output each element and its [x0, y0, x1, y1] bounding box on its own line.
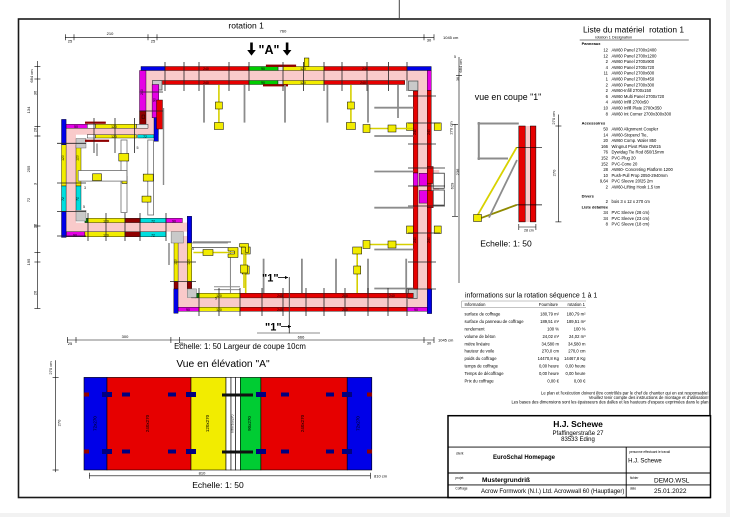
svg-text:Liste détaillée: Liste détaillée [582, 204, 609, 209]
svg-text:684 cm: 684 cm [29, 69, 34, 83]
svg-text:26: 26 [33, 127, 38, 132]
svg-text:AW60 Comp. Waler 850: AW60 Comp. Waler 850 [612, 138, 658, 143]
svg-text:temps de coffrage: temps de coffrage [465, 364, 499, 369]
svg-text:90: 90 [261, 67, 265, 71]
svg-text:34: 34 [603, 210, 608, 215]
svg-text:30: 30 [427, 38, 432, 43]
svg-text:5: 5 [454, 55, 456, 59]
svg-text:240: 240 [427, 129, 431, 135]
svg-text:270 cm: 270 cm [48, 361, 53, 375]
svg-text:166: 166 [601, 144, 609, 149]
svg-text:90: 90 [414, 308, 418, 312]
svg-text:25: 25 [68, 39, 73, 44]
svg-text:Liste du matériel rotation 1: Liste du matériel rotation 1 [583, 25, 684, 35]
svg-text:Prix du coffrage: Prix du coffrage [465, 378, 495, 383]
svg-text:AW60 Multi Panel 2700x720: AW60 Multi Panel 2700x720 [612, 94, 665, 99]
svg-text:240: 240 [413, 237, 417, 243]
svg-text:236: 236 [455, 168, 460, 175]
svg-text:Infill 50x270: Infill 50x270 [231, 414, 235, 432]
svg-text:Wingnut Pivot Plate DW15: Wingnut Pivot Plate DW15 [612, 144, 662, 149]
svg-text:120x270: 120x270 [205, 414, 210, 432]
svg-text:PVC Sleeve (28 cm): PVC Sleeve (28 cm) [612, 210, 651, 215]
svg-text:34,580 m: 34,580 m [568, 341, 586, 346]
svg-text:EuroSchal Homepage: EuroSchal Homepage [493, 455, 556, 461]
svg-text:760: 760 [280, 29, 287, 34]
svg-text:28 cm: 28 cm [524, 229, 534, 233]
svg-text:12: 12 [603, 48, 608, 53]
svg-text:629: 629 [450, 182, 455, 189]
svg-text:300: 300 [122, 334, 129, 339]
svg-text:Vue en élévation "A": Vue en élévation "A" [176, 359, 270, 370]
svg-text:100 %: 100 % [547, 327, 559, 332]
svg-text:72: 72 [143, 135, 147, 139]
svg-text:100 %: 100 % [574, 327, 586, 332]
svg-text:72x270: 72x270 [93, 416, 98, 431]
svg-text:mètre linéaire: mètre linéaire [465, 341, 491, 346]
svg-text:25: 25 [68, 341, 73, 346]
svg-text:120: 120 [300, 67, 306, 71]
svg-text:255: 255 [26, 165, 31, 172]
svg-text:240: 240 [360, 81, 366, 85]
svg-text:666: 666 [298, 335, 305, 340]
svg-text:bois 3 x 12 x 270 cm: bois 3 x 12 x 270 cm [612, 199, 651, 204]
svg-text:AW60 Int Corner 2700x300x300: AW60 Int Corner 2700x300x300 [612, 111, 672, 116]
svg-text:810 cm: 810 cm [374, 474, 388, 479]
svg-text:PVC Sleeve (23 cm): PVC Sleeve (23 cm) [612, 216, 651, 221]
svg-text:Echelle: 1: 50: Echelle: 1: 50 [480, 239, 532, 249]
svg-text:120: 120 [61, 155, 65, 161]
svg-text:PVC Sleeve (18 cm): PVC Sleeve (18 cm) [612, 222, 651, 227]
svg-text:240x270: 240x270 [300, 414, 305, 432]
svg-text:240: 240 [413, 129, 417, 135]
svg-text:90: 90 [152, 98, 156, 102]
svg-text:152: 152 [601, 161, 609, 166]
svg-text:270 cm: 270 cm [449, 121, 454, 135]
svg-text:informations sur la rotation: informations sur la rotation séquence 1 … [465, 293, 597, 300]
svg-text:AW60 Panel 2700x300: AW60 Panel 2700x300 [612, 82, 655, 87]
svg-text:28: 28 [603, 167, 608, 172]
svg-text:client: client [456, 452, 464, 456]
svg-text:PVC Sleeve 20/25 2m: PVC Sleeve 20/25 2m [612, 179, 654, 184]
svg-text:personne effectuant le travail: personne effectuant le travail [629, 450, 670, 454]
svg-text:AW60 Panel 2700x720: AW60 Panel 2700x720 [612, 65, 655, 70]
svg-text:90x270: 90x270 [247, 416, 252, 431]
svg-text:240: 240 [389, 294, 395, 298]
svg-text:0,00 heure: 0,00 heure [565, 364, 586, 369]
svg-text:72x270: 72x270 [356, 416, 361, 431]
svg-text:134: 134 [26, 106, 31, 113]
svg-text:270,0 cm: 270,0 cm [542, 349, 560, 354]
svg-text:240: 240 [277, 294, 283, 298]
svg-text:180,79 m²: 180,79 m² [567, 312, 586, 317]
svg-text:810: 810 [199, 470, 206, 475]
svg-text:90: 90 [261, 81, 265, 85]
svg-text:AW60 Panel 2700x2400: AW60 Panel 2700x2400 [612, 48, 658, 53]
svg-text:14470,8 Kg: 14470,8 Kg [538, 356, 560, 361]
svg-text:Acrow Formwork (N.I.) Ltd. Acr: Acrow Formwork (N.I.) Ltd. Acrowwall 60 … [481, 489, 624, 495]
svg-text:72: 72 [26, 197, 31, 202]
svg-text:surface du panneau de coffrage: surface du panneau de coffrage [465, 319, 525, 324]
svg-text:Mustergrundriß: Mustergrundriß [482, 477, 530, 484]
svg-text:270,0 cm: 270,0 cm [568, 349, 586, 354]
svg-text:240: 240 [427, 237, 431, 243]
svg-text:1045 cm: 1045 cm [438, 338, 454, 343]
svg-text:PVC-Plug 20: PVC-Plug 20 [612, 156, 637, 161]
svg-text:72: 72 [61, 197, 65, 201]
svg-text:H.J. Schewe: H.J. Schewe [553, 419, 603, 429]
svg-text:"1": "1" [262, 273, 279, 285]
svg-text:Information: Information [465, 302, 487, 307]
svg-text:0,00 heure: 0,00 heure [565, 371, 586, 376]
svg-text:Accessoires: Accessoires [582, 121, 606, 126]
svg-text:H.J. Schewe: H.J. Schewe [628, 459, 662, 465]
svg-text:AW60- Concreting Platform 1200: AW60- Concreting Platform 1200 [612, 167, 674, 172]
svg-text:24,02 m³: 24,02 m³ [542, 334, 559, 339]
svg-text:25.01.2022: 25.01.2022 [654, 488, 687, 495]
svg-text:36: 36 [456, 77, 460, 81]
svg-text:Coffrage: Coffrage [455, 487, 467, 491]
svg-text:210: 210 [107, 31, 114, 36]
svg-text:AW60 Infill 2700x50: AW60 Infill 2700x50 [612, 100, 650, 105]
svg-text:AW60 Infill Plate 2700x350: AW60 Infill Plate 2700x350 [612, 106, 663, 111]
svg-text:AW60 Panel 2700x1200: AW60 Panel 2700x1200 [612, 53, 658, 58]
svg-text:AW60-Stopend Tie,: AW60-Stopend Tie, [612, 132, 648, 137]
svg-text:Les bases des dimensions sont: Les bases des dimensions sont les épaiss… [511, 400, 709, 405]
svg-text:76: 76 [603, 150, 608, 155]
svg-text:rotation 1: rotation 1 [595, 36, 611, 40]
svg-text:30: 30 [427, 341, 432, 346]
svg-text:Panneaux: Panneaux [582, 41, 602, 46]
svg-text:10: 10 [603, 106, 608, 111]
svg-text:date: date [630, 487, 636, 491]
svg-text:AW60 Panel 2700x900: AW60 Panel 2700x900 [612, 59, 655, 64]
svg-text:72: 72 [151, 233, 155, 237]
svg-text:50: 50 [603, 127, 608, 132]
svg-text:0,00 heure: 0,00 heure [539, 371, 560, 376]
svg-text:90: 90 [186, 308, 190, 312]
svg-text:3: 3 [84, 186, 86, 190]
svg-text:270: 270 [552, 169, 557, 176]
svg-text:Divers: Divers [582, 193, 595, 198]
svg-text:120: 120 [111, 125, 117, 129]
svg-text:90: 90 [73, 233, 77, 237]
svg-text:5: 5 [192, 247, 194, 251]
svg-text:projet: projet [455, 476, 463, 480]
svg-text:AW60 Alignment Coupler: AW60 Alignment Coupler [612, 127, 659, 132]
svg-text:120: 120 [111, 135, 117, 139]
svg-text:10: 10 [603, 173, 608, 178]
svg-text:120: 120 [76, 155, 80, 161]
svg-text:0,00 heure: 0,00 heure [539, 364, 560, 369]
svg-text:rotation 1: rotation 1 [228, 21, 264, 31]
svg-text:poids du coffrage: poids du coffrage [465, 356, 498, 361]
svg-text:5: 5 [137, 146, 139, 150]
svg-text:90: 90 [172, 219, 176, 223]
svg-text:Temps de décoffrage: Temps de décoffrage [465, 371, 505, 376]
svg-text:270: 270 [57, 419, 62, 426]
svg-text:"A": "A" [259, 43, 280, 57]
svg-text:195: 195 [26, 258, 31, 265]
svg-text:5: 5 [215, 297, 217, 301]
svg-text:AW60-Infill 2700x150: AW60-Infill 2700x150 [612, 88, 652, 93]
svg-text:Désignation: Désignation [612, 36, 632, 40]
svg-text:34: 34 [603, 216, 608, 221]
svg-text:25: 25 [151, 39, 156, 44]
svg-text:surface de coffrage: surface de coffrage [465, 312, 501, 317]
svg-text:11: 11 [604, 71, 609, 76]
svg-text:240: 240 [277, 308, 283, 312]
svg-text:26: 26 [33, 290, 38, 295]
svg-text:83533 Eding: 83533 Eding [561, 437, 595, 443]
svg-text:DEMO.WSL: DEMO.WSL [654, 478, 690, 485]
svg-text:189,51 m²: 189,51 m² [540, 319, 559, 324]
svg-text:rendement: rendement [465, 327, 486, 332]
svg-text:36: 36 [33, 90, 38, 95]
svg-text:20: 20 [603, 138, 608, 143]
svg-text:Echelle: 1: 50: Echelle: 1: 50 [192, 480, 244, 490]
svg-text:50: 50 [74, 125, 78, 129]
svg-text:PVC-Cone 20: PVC-Cone 20 [612, 161, 639, 166]
svg-text:AW60 Panel 2700x450: AW60 Panel 2700x450 [612, 77, 655, 82]
svg-text:0,00 €: 0,00 € [574, 378, 586, 383]
svg-text:1045 cm: 1045 cm [443, 35, 459, 40]
svg-text:AW60-Lifting Hook 1.5 ton: AW60-Lifting Hook 1.5 ton [612, 185, 661, 190]
svg-text:26: 26 [33, 223, 38, 228]
svg-text:Fourniture: Fourniture [539, 302, 559, 307]
svg-text:"1": "1" [265, 322, 282, 334]
svg-text:684 cm: 684 cm [458, 59, 463, 73]
svg-text:270 cm: 270 cm [551, 111, 556, 125]
svg-text:120: 120 [300, 81, 306, 85]
svg-text:14: 14 [603, 132, 608, 137]
svg-text:Dywidag Tie Rod 850/15mm: Dywidag Tie Rod 850/15mm [612, 150, 665, 155]
svg-text:hauteur de voile: hauteur de voile [465, 349, 495, 354]
svg-text:5: 5 [83, 205, 85, 209]
svg-text:vue en coupe "1": vue en coupe "1" [475, 92, 541, 102]
svg-text:189,51 m²: 189,51 m² [567, 319, 586, 324]
svg-text:240x270: 240x270 [145, 414, 150, 432]
svg-text:9,64: 9,64 [600, 179, 609, 184]
svg-text:Echelle: 1: 50 Largeur de co: Echelle: 1: 50 Largeur de coupe 10cm [174, 342, 306, 351]
svg-text:24,02 m³: 24,02 m³ [569, 334, 586, 339]
svg-text:72: 72 [151, 219, 155, 223]
svg-text:240: 240 [203, 67, 209, 71]
svg-text:34,580 m: 34,580 m [542, 341, 560, 346]
svg-text:180,79 m²: 180,79 m² [540, 312, 559, 317]
svg-text:72: 72 [76, 197, 80, 201]
svg-text:0,00 €: 0,00 € [547, 378, 559, 383]
svg-text:240: 240 [203, 81, 209, 85]
svg-text:AW60 Panel 2700x600: AW60 Panel 2700x600 [612, 71, 655, 76]
svg-text:152: 152 [601, 156, 609, 161]
svg-text:Push-Pull Prop 2050-2940mm: Push-Pull Prop 2050-2940mm [612, 173, 669, 178]
svg-text:14467,8 Kg: 14467,8 Kg [564, 356, 586, 361]
svg-text:rotation 1: rotation 1 [568, 302, 586, 307]
svg-text:12: 12 [603, 53, 608, 58]
svg-text:fichier: fichier [630, 476, 639, 480]
svg-text:volume de béton: volume de béton [465, 334, 497, 339]
